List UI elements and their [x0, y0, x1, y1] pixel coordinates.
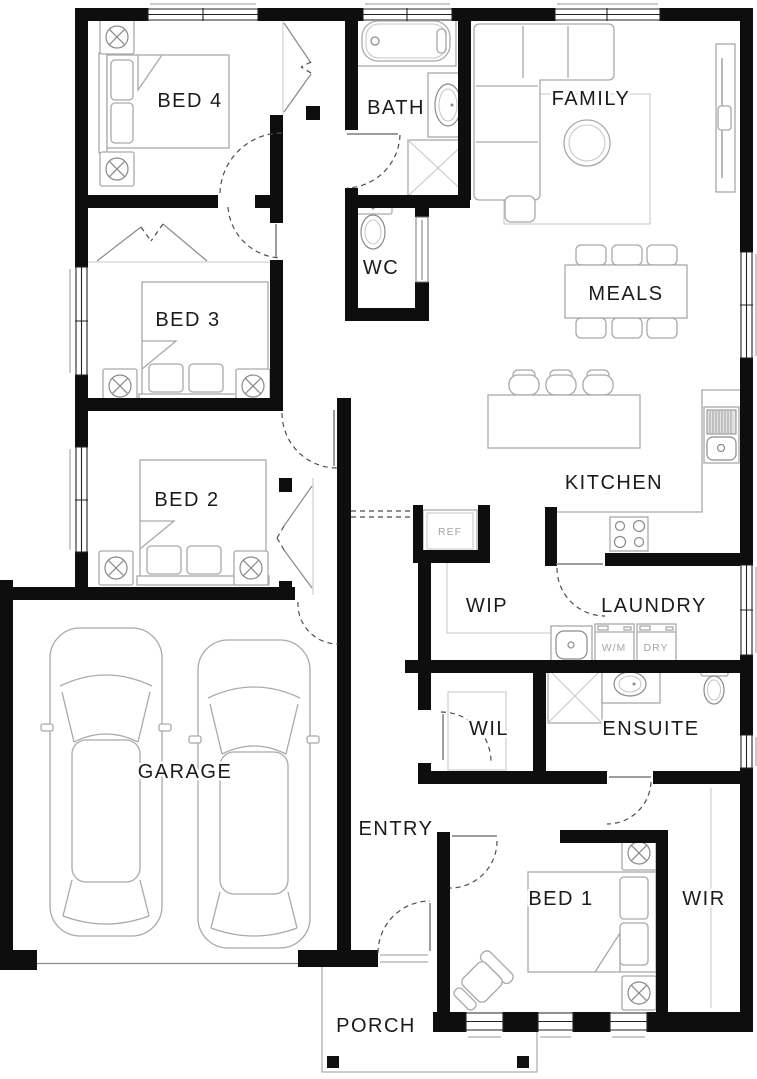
kitchen-sink	[704, 407, 739, 463]
window-laundry	[740, 565, 756, 655]
wall-bed1-top	[560, 830, 656, 843]
window-bed2	[70, 447, 88, 552]
bed-1	[528, 869, 665, 975]
window-bath	[363, 4, 452, 21]
floor-plan-svg: BED 4 BATH FAMILY WC BED 3 MEALS KITCHEN…	[0, 0, 757, 1079]
label-family: FAMILY	[552, 88, 631, 110]
wall-ensuite-passage-a	[418, 771, 607, 784]
label-bed2: BED 2	[154, 489, 219, 511]
laundry-trough	[551, 626, 592, 664]
door-swing-front	[378, 901, 430, 953]
window-bed1-b	[538, 1012, 573, 1037]
bedside-table	[100, 20, 134, 54]
window-ensuite	[740, 735, 756, 768]
label-bed4: BED 4	[157, 90, 222, 112]
porch-post	[327, 1056, 339, 1068]
wall-wip-kitchen	[545, 507, 557, 566]
bedside-table	[236, 369, 270, 403]
wall-ensuite-passage-b	[653, 771, 742, 784]
wall-wc-bottom	[345, 308, 429, 321]
label-porch: PORCH	[336, 1015, 416, 1037]
label-wip: WIP	[466, 595, 508, 617]
wall-kitchen-laundry	[605, 553, 740, 566]
wall-wc-right-a	[415, 195, 429, 217]
wall-corridor-left-a	[270, 115, 283, 223]
window-bed1-c	[610, 1012, 647, 1037]
wall-bath-bottom	[345, 195, 470, 208]
label-dryer: DRY	[644, 642, 669, 654]
wall-bed1-left	[437, 832, 450, 1012]
door-swing-garage	[298, 602, 338, 644]
label-garage: GARAGE	[138, 761, 233, 783]
wall-robe4-stub	[306, 106, 320, 120]
cooktop	[610, 517, 648, 551]
door-swing-bed1	[450, 841, 497, 888]
label-fridge: REF	[438, 526, 462, 538]
wc-toilet	[355, 202, 392, 249]
wall-bath-left-a	[345, 8, 358, 130]
label-washer: W/M	[602, 642, 627, 654]
wall-wil-ensuite	[533, 673, 546, 771]
window-bed1-a	[466, 1012, 503, 1037]
wall-garage-left	[0, 580, 13, 970]
wall-corridor-left-b	[270, 260, 283, 411]
bedside-table	[622, 976, 656, 1010]
window-meals	[740, 252, 756, 358]
label-wir: WIR	[682, 888, 725, 910]
wall-bed1-wir	[656, 830, 668, 1012]
bar-stools	[509, 370, 613, 395]
label-ensuite: ENSUITE	[602, 718, 699, 740]
label-bath: BATH	[367, 97, 425, 119]
door-swing-laundry	[557, 568, 605, 616]
wall-bath-family	[458, 8, 471, 200]
label-wil: WIL	[469, 718, 509, 740]
front-door-threshold	[380, 955, 428, 962]
window-bed3	[70, 267, 88, 375]
sofa	[474, 24, 614, 222]
door-swing-bath	[347, 135, 400, 188]
bedside-table	[103, 369, 137, 403]
label-bed3: BED 3	[155, 309, 220, 331]
porch-post	[517, 1056, 529, 1068]
ensuite-shower	[548, 669, 602, 723]
wardrobe-bed3	[88, 224, 270, 262]
wall-hall-entry	[337, 398, 351, 967]
label-entry: ENTRY	[359, 818, 434, 840]
bedside-table	[100, 152, 134, 186]
island-bench	[488, 395, 640, 448]
floor-plan: BED 4 BATH FAMILY WC BED 3 MEALS KITCHEN…	[0, 0, 757, 1079]
wall-front	[298, 950, 378, 967]
label-wc: WC	[363, 257, 399, 279]
wall-garage-top	[0, 587, 295, 600]
wall-bed4-bottom	[88, 195, 218, 208]
label-kitchen: KITCHEN	[565, 472, 663, 494]
wall-robe2-stub-b	[279, 581, 292, 595]
door-swing-bed2	[282, 413, 337, 468]
wall-garage-corner	[0, 950, 37, 970]
wardrobe-bed4	[283, 21, 311, 115]
wall-entry-wip	[418, 563, 431, 710]
wardrobe-bed2	[277, 478, 313, 595]
bathtub	[356, 16, 456, 66]
bedside-table	[99, 551, 133, 585]
wc-cavity-slider	[416, 217, 428, 282]
armchair	[447, 949, 515, 1017]
bedside-table	[234, 551, 268, 585]
wall-robe2-stub-a	[279, 478, 292, 492]
wall-fridge-bottom	[413, 550, 490, 563]
label-laundry: LAUNDRY	[601, 595, 707, 617]
coffee-table	[564, 120, 610, 166]
label-meals: MEALS	[588, 283, 663, 305]
wall-bed3-bed2	[88, 398, 283, 411]
bulkhead-dashes	[351, 511, 413, 517]
wall-right	[740, 8, 753, 1032]
label-bed1: BED 1	[528, 888, 593, 910]
window-bed4	[148, 4, 258, 21]
window-family	[555, 4, 660, 21]
tv-unit	[716, 44, 735, 192]
car	[189, 640, 319, 948]
wall-laundry-ensuite	[405, 660, 742, 673]
door-swing-ensuite	[607, 782, 651, 824]
